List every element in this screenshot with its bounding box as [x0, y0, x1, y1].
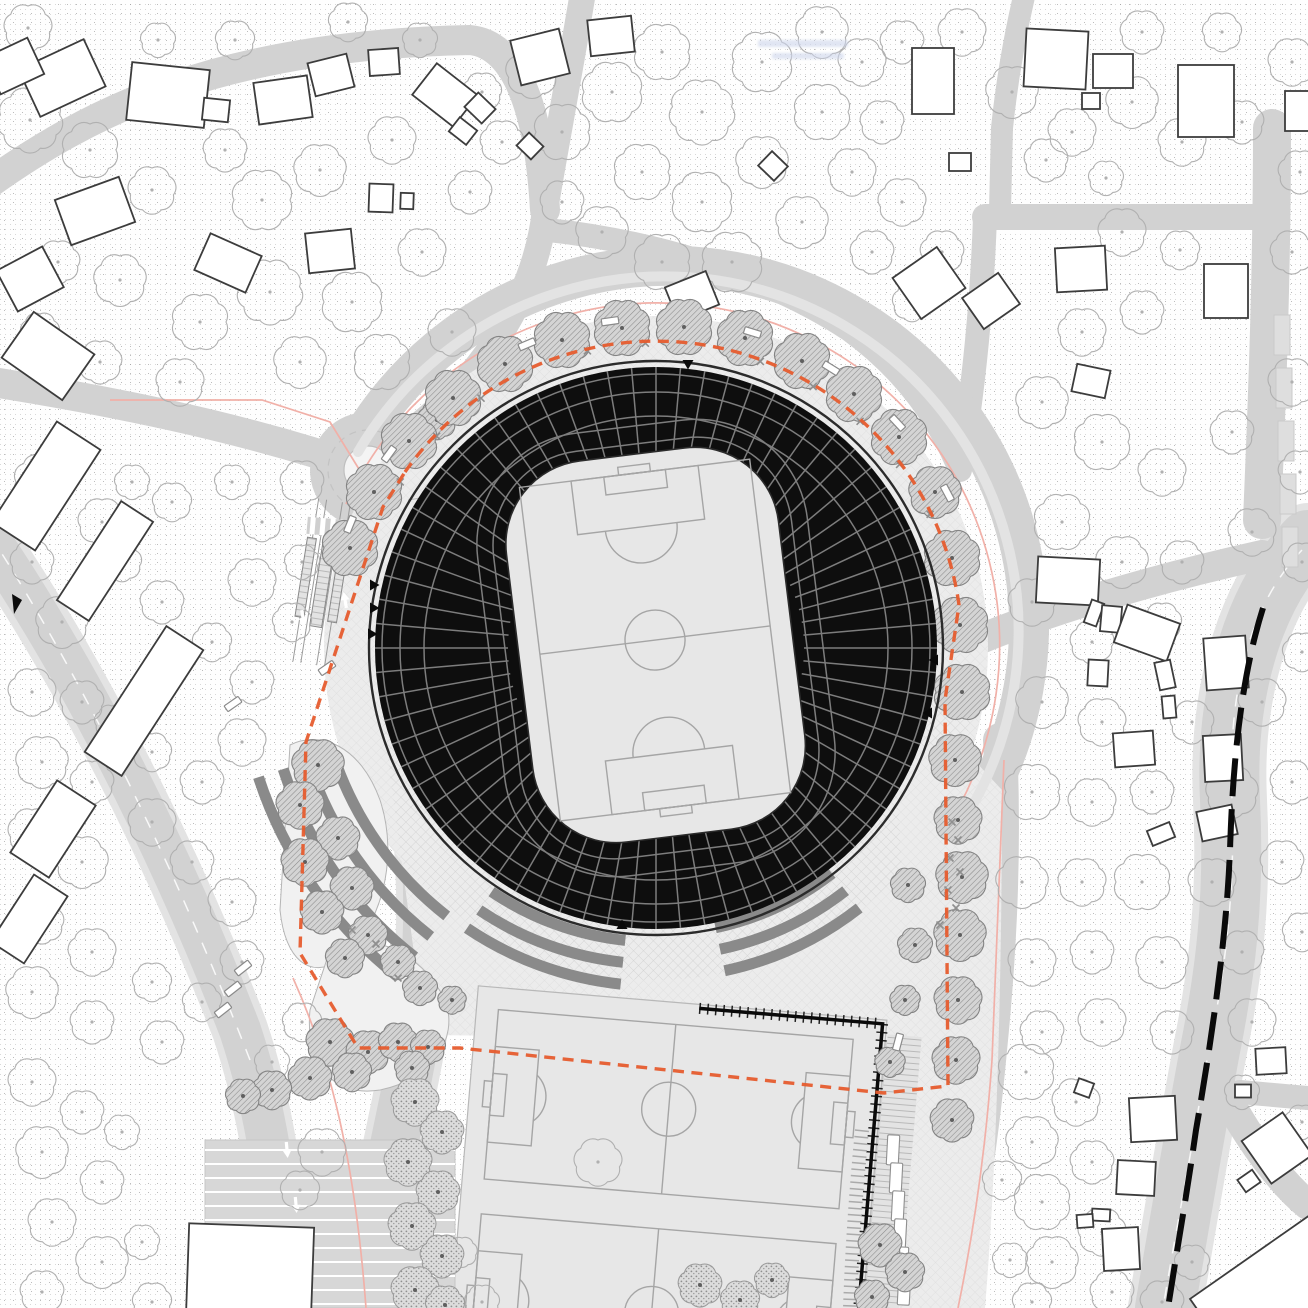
tree [16, 737, 68, 789]
tree-dense [932, 1037, 980, 1084]
building [126, 62, 210, 128]
site-plan-drawing [0, 0, 1308, 1308]
building [1178, 65, 1234, 137]
stadium-field [496, 438, 815, 853]
tree [1048, 109, 1096, 156]
building [1087, 659, 1108, 686]
tree [614, 144, 669, 199]
road [1262, 128, 1272, 520]
building [0, 875, 68, 964]
tree [140, 581, 184, 624]
tree [1014, 1174, 1069, 1229]
tree [1016, 377, 1068, 429]
building [400, 193, 414, 209]
building [253, 75, 312, 124]
tree [828, 149, 876, 196]
tree-dense [890, 868, 925, 902]
tree [860, 101, 904, 144]
tree [1074, 414, 1129, 469]
building [202, 98, 230, 123]
tree [28, 1199, 76, 1246]
tree-dense [934, 910, 986, 962]
building [0, 422, 100, 551]
tree [232, 170, 291, 229]
tree [104, 1115, 139, 1149]
building [1129, 1096, 1177, 1142]
tree-dense [934, 977, 982, 1024]
building [587, 16, 635, 56]
tree [322, 272, 381, 331]
tree [1026, 1237, 1078, 1289]
tree [124, 1225, 159, 1259]
building [949, 153, 971, 171]
tree [1120, 11, 1164, 54]
tree [274, 337, 326, 389]
site-plan-canvas [0, 0, 1308, 1308]
building [1113, 731, 1155, 768]
building [0, 246, 64, 311]
tree [992, 1243, 1027, 1277]
tree-dense [288, 1057, 332, 1100]
tree [1078, 999, 1126, 1046]
tree [20, 1271, 64, 1308]
tree-dense [281, 839, 329, 886]
tree-dense [300, 891, 344, 934]
tree [368, 117, 416, 164]
tree [1058, 859, 1106, 906]
street-parking [1280, 474, 1296, 514]
building [1235, 1085, 1251, 1098]
tree [1136, 937, 1188, 989]
tree-dense [890, 985, 920, 1015]
tree-dense [875, 1047, 905, 1077]
tree [796, 7, 848, 59]
building [1237, 1170, 1260, 1193]
building [1255, 1047, 1286, 1075]
road [1000, 0, 1028, 210]
tree [878, 179, 926, 226]
tree-dense [325, 939, 364, 978]
tree [16, 1127, 68, 1179]
tree-dense [930, 1099, 974, 1142]
tree-dense [909, 467, 961, 519]
tree [1130, 771, 1174, 814]
building [1093, 54, 1133, 88]
tree [1114, 854, 1169, 909]
bench [224, 696, 242, 711]
tree-dense [897, 928, 932, 962]
tree-dense [936, 852, 988, 904]
building [1203, 636, 1249, 691]
building [1102, 1227, 1140, 1271]
tree [1160, 231, 1199, 270]
tree [8, 1059, 56, 1106]
building [1092, 1209, 1111, 1222]
building [1116, 1160, 1156, 1196]
tree [218, 719, 266, 766]
street-parking [1276, 368, 1292, 408]
tree [242, 503, 281, 542]
tree [1088, 161, 1123, 195]
building [1285, 91, 1308, 131]
tree [1008, 939, 1056, 986]
tree [80, 1161, 124, 1204]
parking-stall [889, 1163, 903, 1194]
tree [156, 359, 204, 406]
tree [8, 669, 56, 716]
tree [1270, 761, 1308, 804]
building [57, 501, 153, 621]
bench [601, 317, 619, 326]
building [412, 63, 478, 127]
tree [1070, 931, 1114, 974]
tree [398, 229, 446, 276]
tree [132, 1283, 171, 1308]
tree-dense [276, 782, 324, 829]
tree-dense [929, 735, 981, 787]
building [1055, 246, 1107, 293]
building [1114, 605, 1180, 662]
tree [172, 294, 227, 349]
tree [1120, 291, 1164, 334]
tree-textured [678, 1264, 722, 1307]
parking-stall [886, 1135, 900, 1166]
building [1077, 1214, 1094, 1228]
tree [480, 121, 524, 164]
tree [1282, 913, 1308, 952]
building [194, 233, 261, 292]
tree [140, 1021, 184, 1064]
training-pitch-area [428, 986, 923, 1308]
tree-dense [332, 1053, 371, 1092]
field-terrace [496, 438, 815, 853]
building [1024, 28, 1089, 89]
tree [1034, 494, 1089, 549]
building [55, 177, 135, 245]
tree [228, 559, 276, 606]
tree [582, 62, 641, 121]
tree-dense [885, 1253, 924, 1292]
building [1036, 556, 1100, 605]
tree [132, 963, 171, 1002]
building [368, 48, 400, 76]
tree [76, 1237, 128, 1289]
tree [1020, 1011, 1064, 1054]
tree [669, 80, 734, 145]
tree [1070, 1141, 1114, 1184]
building [369, 184, 394, 213]
street-parking [1274, 315, 1290, 355]
tree-dense [438, 986, 466, 1014]
watermark-line [758, 40, 848, 47]
building [1082, 93, 1100, 109]
building [1074, 1078, 1094, 1098]
building [1154, 660, 1175, 691]
tree [776, 197, 828, 249]
building [305, 229, 355, 274]
tree [214, 465, 249, 499]
tree-textured [420, 1111, 464, 1154]
building [1147, 822, 1175, 846]
tree [128, 167, 176, 214]
building [893, 247, 966, 319]
building [758, 151, 788, 181]
tree [140, 23, 175, 57]
tree [94, 255, 146, 307]
tree [448, 171, 492, 214]
tree [68, 929, 116, 976]
tree-textured [754, 1263, 789, 1297]
building [912, 48, 954, 114]
tree [70, 1001, 114, 1044]
watermark-line [772, 53, 844, 59]
tree [152, 483, 191, 522]
tree [1058, 309, 1106, 356]
tree [794, 84, 849, 139]
tree [1268, 39, 1308, 86]
tree [180, 761, 224, 804]
building [1071, 364, 1110, 398]
building [1162, 695, 1177, 718]
tree [294, 145, 346, 197]
tree [634, 24, 689, 79]
tree [6, 967, 58, 1019]
tree [1138, 449, 1186, 496]
tree [272, 603, 311, 642]
tree [114, 465, 149, 499]
tree [1202, 13, 1241, 52]
tree-dense [934, 797, 982, 844]
tree [1006, 1117, 1058, 1169]
tree [203, 129, 247, 172]
building [186, 1223, 314, 1308]
tree-dense [402, 971, 437, 1005]
tree [1024, 139, 1068, 182]
building [1204, 264, 1248, 318]
tree [672, 172, 731, 231]
tree [850, 231, 894, 274]
tree-dense [225, 1079, 260, 1113]
parking-stall [891, 1191, 905, 1222]
tree [1068, 779, 1116, 826]
tree [1090, 1271, 1134, 1308]
tree [60, 1091, 104, 1134]
